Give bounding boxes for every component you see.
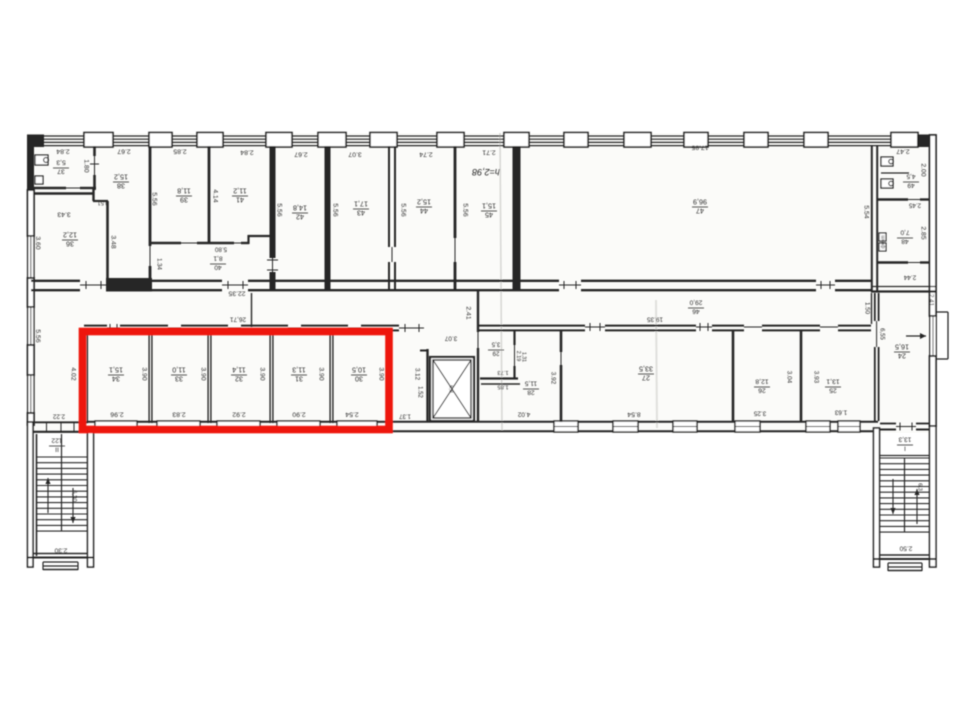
- svg-text:3.90: 3.90: [378, 367, 385, 380]
- svg-text:96,9: 96,9: [693, 198, 707, 207]
- svg-text:15,1: 15,1: [482, 202, 496, 211]
- svg-text:5.56: 5.56: [34, 329, 41, 342]
- svg-text:5.56: 5.56: [151, 192, 158, 205]
- svg-text:39: 39: [180, 196, 188, 205]
- svg-text:3.07: 3.07: [444, 335, 457, 342]
- svg-text:2.41: 2.41: [465, 306, 472, 319]
- svg-text:3.25: 3.25: [753, 410, 766, 417]
- svg-text:3.90: 3.90: [141, 367, 148, 380]
- svg-text:5.56: 5.56: [462, 203, 469, 216]
- svg-text:2.50: 2.50: [899, 545, 912, 552]
- svg-text:37: 37: [57, 168, 65, 175]
- svg-text:49: 49: [907, 182, 915, 189]
- svg-text:5.56: 5.56: [276, 203, 283, 216]
- svg-text:29: 29: [492, 350, 499, 357]
- svg-text:29,0: 29,0: [689, 299, 702, 306]
- svg-text:11,0: 11,0: [172, 366, 185, 375]
- svg-text:44: 44: [420, 207, 428, 216]
- svg-text:33,5: 33,5: [639, 365, 653, 374]
- svg-text:46: 46: [692, 308, 700, 315]
- svg-text:3.90: 3.90: [259, 367, 266, 380]
- svg-text:12,8: 12,8: [755, 378, 768, 385]
- svg-text:2.96: 2.96: [110, 411, 123, 418]
- svg-text:2.74: 2.74: [419, 151, 432, 158]
- svg-text:22.35: 22.35: [228, 290, 245, 297]
- svg-text:2.22: 2.22: [52, 413, 65, 420]
- svg-text:122: 122: [51, 437, 62, 444]
- svg-text:11,3: 11,3: [292, 366, 305, 375]
- svg-text:26: 26: [758, 387, 766, 394]
- svg-text:II: II: [55, 446, 59, 453]
- svg-text:2.44: 2.44: [903, 274, 916, 281]
- svg-text:1.34: 1.34: [156, 258, 162, 270]
- svg-text:17.85: 17.85: [691, 144, 708, 151]
- svg-text:2.54: 2.54: [345, 411, 358, 418]
- svg-text:2.85: 2.85: [920, 226, 927, 239]
- svg-text:3,5: 3,5: [491, 341, 500, 348]
- svg-text:2.47: 2.47: [896, 148, 909, 155]
- svg-text:3.93: 3.93: [813, 371, 820, 384]
- svg-text:17,1: 17,1: [354, 200, 368, 209]
- svg-text:3.12: 3.12: [414, 368, 421, 381]
- svg-text:41: 41: [236, 196, 244, 205]
- svg-text:2.67: 2.67: [117, 148, 130, 155]
- svg-text:16,5: 16,5: [895, 343, 909, 352]
- svg-text:3.92: 3.92: [550, 372, 557, 385]
- svg-text:15,1: 15,1: [109, 366, 123, 375]
- svg-text:I: I: [904, 445, 906, 452]
- svg-text:14,8: 14,8: [293, 204, 307, 213]
- svg-text:1.80: 1.80: [83, 159, 90, 172]
- svg-text:48: 48: [901, 238, 909, 245]
- svg-text:3.48: 3.48: [110, 235, 117, 248]
- svg-text:0,51: 0,51: [97, 200, 108, 206]
- svg-text:8.54: 8.54: [627, 411, 640, 418]
- svg-text:1.63: 1.63: [834, 409, 847, 416]
- svg-text:15,2: 15,2: [114, 173, 128, 182]
- svg-text:11,5: 11,5: [524, 380, 537, 387]
- svg-text:2.67: 2.67: [294, 151, 307, 158]
- svg-text:13,1: 13,1: [826, 378, 839, 385]
- svg-text:38: 38: [117, 182, 125, 191]
- svg-text:28: 28: [527, 389, 535, 396]
- svg-text:1.73: 1.73: [497, 369, 508, 375]
- svg-text:8,1: 8,1: [213, 255, 222, 262]
- svg-text:2.71: 2.71: [482, 149, 495, 156]
- svg-text:7,0: 7,0: [900, 229, 909, 236]
- svg-text:2.83: 2.83: [172, 411, 185, 418]
- svg-text:2.92: 2.92: [232, 411, 245, 418]
- svg-text:5,3: 5,3: [56, 159, 66, 166]
- svg-text:1,31: 1,31: [521, 352, 527, 362]
- svg-text:25: 25: [829, 387, 837, 394]
- svg-text:3.43: 3.43: [57, 211, 70, 218]
- svg-text:1.85: 1.85: [497, 384, 508, 390]
- svg-text:43: 43: [357, 209, 365, 218]
- svg-text:15,2: 15,2: [417, 198, 431, 207]
- svg-text:32: 32: [235, 375, 243, 384]
- svg-text:19.35: 19.35: [647, 316, 663, 323]
- svg-text:1.52: 1.52: [417, 386, 423, 398]
- svg-text:30: 30: [355, 375, 363, 384]
- svg-text:3.07: 3.07: [348, 151, 361, 158]
- svg-text:4.14: 4.14: [212, 189, 219, 202]
- svg-text:4.02: 4.02: [517, 411, 530, 418]
- svg-text:47: 47: [696, 207, 704, 216]
- svg-text:36: 36: [66, 240, 74, 249]
- svg-text:шкаф: шкаф: [880, 235, 886, 248]
- svg-text:24: 24: [898, 352, 906, 361]
- svg-text:1.37: 1.37: [399, 413, 411, 419]
- svg-text:42: 42: [296, 213, 304, 222]
- svg-text:11,8: 11,8: [177, 187, 190, 196]
- svg-text:40: 40: [214, 264, 222, 271]
- svg-text:3.04: 3.04: [786, 371, 793, 384]
- svg-text:2.45: 2.45: [908, 202, 921, 209]
- svg-text:4,5: 4,5: [906, 173, 915, 180]
- svg-text:6,3: 6,3: [917, 483, 923, 491]
- svg-text:h=2,98: h=2,98: [472, 167, 500, 177]
- svg-text:12,2: 12,2: [63, 231, 77, 240]
- svg-text:3.60: 3.60: [34, 236, 41, 249]
- svg-text:31: 31: [295, 375, 303, 384]
- svg-text:2.84: 2.84: [56, 148, 69, 155]
- svg-text:11,4: 11,4: [232, 366, 245, 375]
- svg-text:2.84: 2.84: [240, 149, 253, 156]
- svg-text:3.90: 3.90: [200, 367, 207, 380]
- svg-text:10,5: 10,5: [352, 366, 366, 375]
- svg-text:5.80: 5.80: [214, 246, 227, 253]
- svg-text:34: 34: [112, 375, 120, 384]
- svg-text:6,55: 6,55: [879, 328, 885, 340]
- svg-text:6,30: 6,30: [71, 490, 77, 502]
- svg-text:2.00: 2.00: [920, 163, 927, 176]
- svg-text:2.41: 2.41: [928, 294, 935, 307]
- svg-text:13,3: 13,3: [898, 436, 911, 443]
- svg-text:2.85: 2.85: [173, 148, 186, 155]
- svg-text:2.30: 2.30: [54, 547, 67, 554]
- svg-text:1.50: 1.50: [864, 302, 871, 315]
- svg-text:3.90: 3.90: [318, 367, 325, 380]
- svg-text:33: 33: [175, 375, 183, 384]
- svg-text:5.56: 5.56: [332, 203, 339, 216]
- svg-text:6,8: 6,8: [448, 385, 454, 393]
- svg-text:27: 27: [642, 374, 650, 383]
- svg-text:45: 45: [485, 211, 493, 220]
- svg-text:4.02: 4.02: [70, 367, 77, 380]
- svg-text:2.90: 2.90: [292, 411, 305, 418]
- svg-text:5.56: 5.56: [400, 203, 407, 216]
- svg-text:5.54: 5.54: [863, 205, 870, 218]
- svg-text:2.19: 2.19: [515, 351, 521, 362]
- svg-text:11,2: 11,2: [233, 187, 246, 196]
- svg-text:26,71: 26,71: [230, 316, 246, 323]
